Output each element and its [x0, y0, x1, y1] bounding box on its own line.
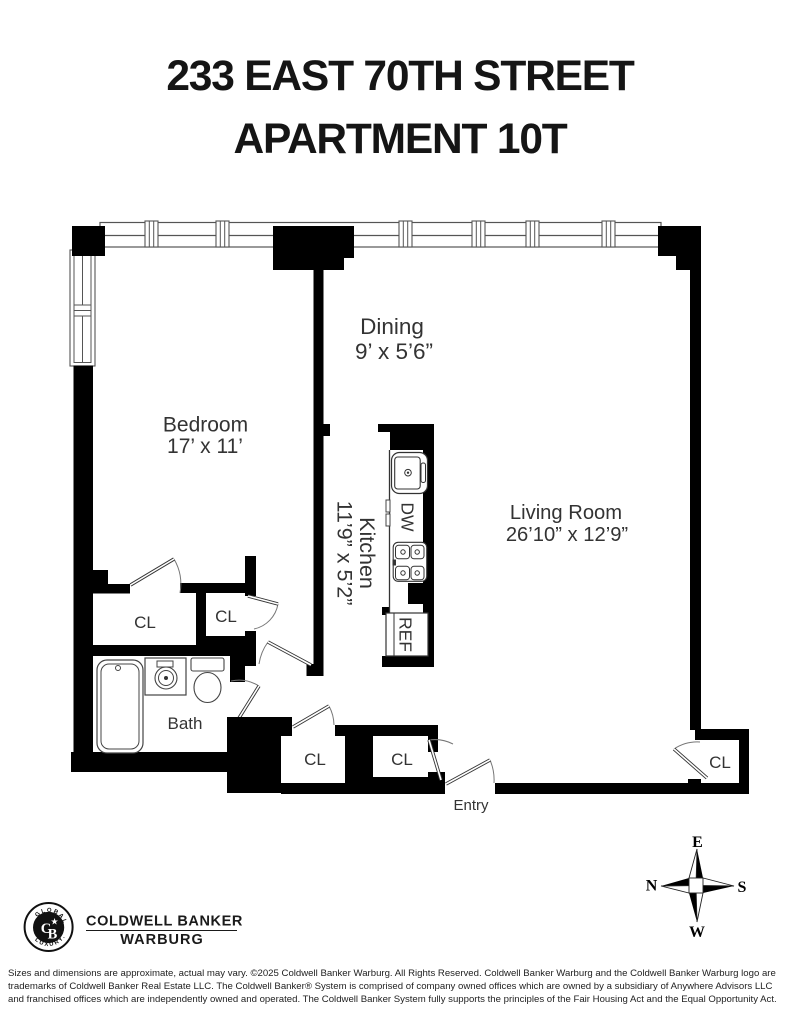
svg-text:W: W	[689, 924, 705, 941]
svg-text:CL: CL	[391, 750, 413, 769]
svg-text:Kitchen: Kitchen	[355, 517, 379, 589]
svg-text:CL: CL	[709, 753, 731, 772]
svg-text:B: B	[48, 927, 58, 943]
svg-text:26’10” x 12’9”: 26’10” x 12’9”	[506, 524, 628, 546]
svg-text:11’9” x 5’2”: 11’9” x 5’2”	[333, 501, 357, 606]
svg-text:CL: CL	[215, 607, 237, 626]
svg-text:Entry: Entry	[453, 797, 489, 814]
svg-text:CL: CL	[134, 613, 156, 632]
svg-text:REF: REF	[396, 617, 416, 652]
svg-text:COLDWELL BANKER: COLDWELL BANKER	[86, 914, 243, 930]
svg-text:S: S	[738, 879, 747, 896]
svg-text:E: E	[692, 834, 703, 851]
svg-text:DW: DW	[398, 502, 418, 532]
svg-text:Bedroom: Bedroom	[163, 414, 248, 437]
svg-text:17’ x 11’: 17’ x 11’	[167, 435, 243, 458]
svg-text:Bath: Bath	[168, 714, 203, 733]
svg-text:N: N	[646, 878, 658, 895]
svg-text:9’ x 5’6”: 9’ x 5’6”	[355, 339, 433, 364]
svg-text:★: ★	[50, 917, 58, 927]
svg-text:CL: CL	[304, 750, 326, 769]
svg-text:Dining: Dining	[360, 314, 424, 339]
svg-text:Living Room: Living Room	[510, 502, 622, 524]
svg-text:WARBURG: WARBURG	[120, 932, 204, 948]
